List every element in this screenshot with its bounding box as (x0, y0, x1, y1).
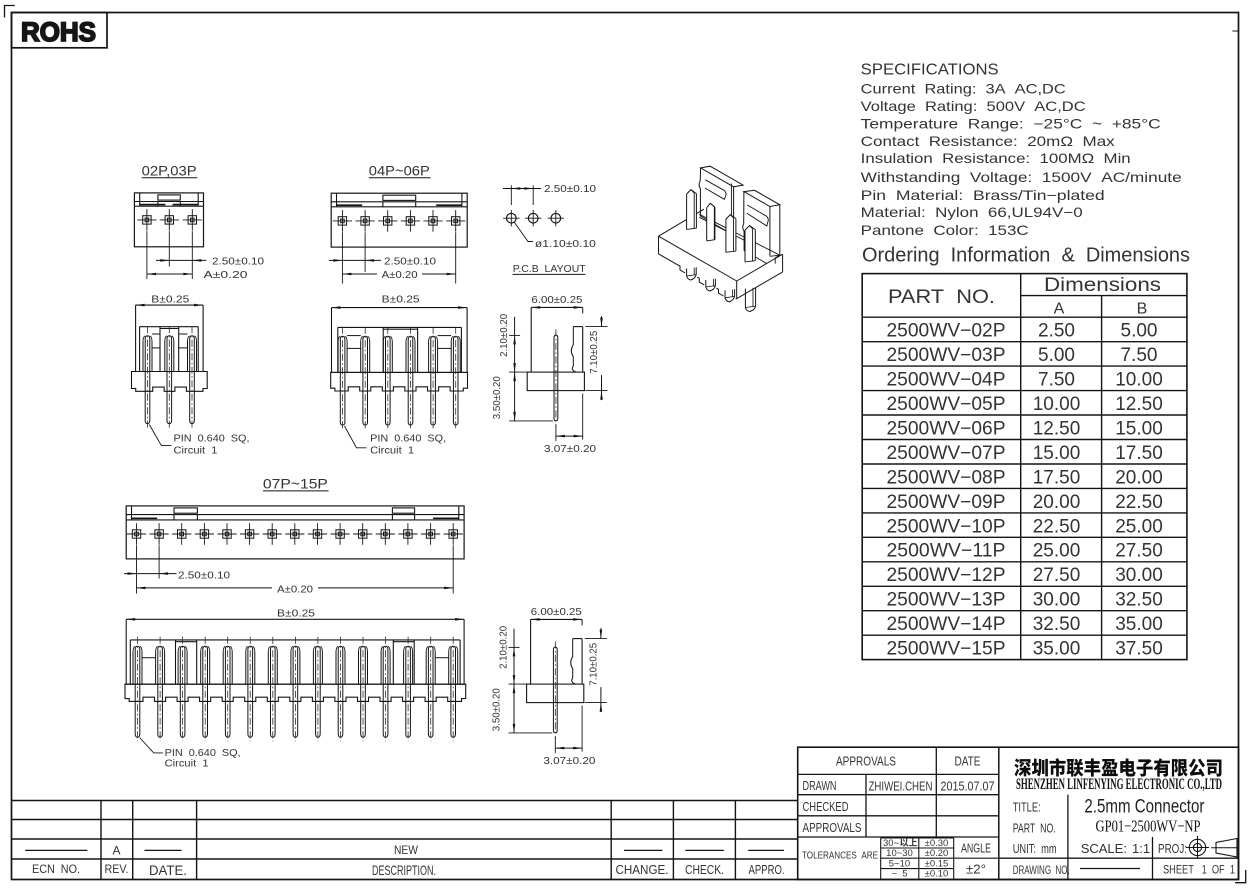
svg-text:B: B (1137, 301, 1148, 318)
svg-text:DATE: DATE (955, 754, 981, 769)
svg-text:2015.07.07: 2015.07.07 (941, 780, 995, 794)
svg-text:A±0.20: A±0.20 (277, 584, 313, 595)
svg-text:35.00: 35.00 (1115, 614, 1163, 635)
svg-text:A±0.20: A±0.20 (204, 270, 248, 281)
svg-text:ø1.10±0.10: ø1.10±0.10 (535, 239, 596, 250)
svg-text:CHANGE.: CHANGE. (616, 862, 669, 877)
svg-text:SHENZHEN LINFENYING ELECTRONIC: SHENZHEN LINFENYING ELECTRONIC CO.,LTD (1016, 776, 1222, 793)
svg-text:Temperature Range: −25°C ~: Temperature Range: −25°C ~ +85°C (861, 115, 1161, 131)
svg-text:DATE.: DATE. (149, 862, 187, 878)
svg-text:APPRO.: APPRO. (749, 862, 785, 877)
svg-text:NEW: NEW (394, 843, 419, 857)
svg-text:2500WV−04P: 2500WV−04P (887, 370, 1006, 391)
svg-text:GP01−2500WV−NP: GP01−2500WV−NP (1096, 817, 1201, 836)
svg-text:2500WV−02P: 2500WV−02P (887, 321, 1006, 342)
svg-text:Circuit 1: Circuit 1 (165, 759, 209, 770)
svg-text:~ 5: ~ 5 (891, 869, 907, 880)
svg-text:Pin Material: Brass/Tin−plat: Pin Material: Brass/Tin−plated (861, 187, 1105, 203)
svg-text:17.50: 17.50 (1033, 467, 1081, 488)
svg-text:Circuit 1: Circuit 1 (174, 445, 218, 456)
svg-text:ROHS: ROHS (21, 17, 96, 47)
svg-text:2.50±0.10: 2.50±0.10 (384, 257, 436, 268)
svg-text:7.50: 7.50 (1121, 345, 1158, 366)
svg-text:22.50: 22.50 (1115, 492, 1163, 513)
svg-text:2500WV−10P: 2500WV−10P (887, 516, 1006, 537)
svg-text:5~10: 5~10 (889, 858, 910, 869)
svg-text:P.C.B LAYOUT: P.C.B LAYOUT (513, 263, 587, 275)
svg-text:PROJ:: PROJ: (1158, 841, 1187, 856)
svg-text:Ordering Information & Dime: Ordering Information & Dimensions (862, 245, 1190, 267)
svg-text:Circuit 1: Circuit 1 (370, 445, 414, 456)
svg-text:2500WV−07P: 2500WV−07P (887, 443, 1006, 464)
svg-text:Withstanding Voltage: 1500V: Withstanding Voltage: 1500V AC/minute (861, 169, 1182, 185)
svg-text:ECN NO.: ECN NO. (32, 862, 80, 876)
svg-text:2.50±0.10: 2.50±0.10 (178, 571, 230, 582)
svg-text:A: A (1054, 301, 1065, 318)
svg-text:2500WV−14P: 2500WV−14P (887, 614, 1006, 635)
svg-text:6.00±0.25: 6.00±0.25 (531, 607, 582, 618)
svg-text:20.00: 20.00 (1033, 492, 1081, 513)
svg-text:32.50: 32.50 (1115, 590, 1163, 611)
svg-text:2.50±0.10: 2.50±0.10 (544, 184, 596, 195)
svg-text:DESCRIPTION.: DESCRIPTION. (372, 862, 436, 878)
svg-text:ZHIWEI.CHEN: ZHIWEI.CHEN (869, 780, 933, 794)
svg-text:Voltage Rating: 500V AC,DC: Voltage Rating: 500V AC,DC (861, 98, 1086, 114)
svg-text:2.10±0.20: 2.10±0.20 (499, 314, 510, 357)
svg-text:3.50±0.20: 3.50±0.20 (491, 688, 502, 731)
svg-text:37.50: 37.50 (1115, 639, 1163, 660)
svg-text:Contact Resistance: 20mΩ Ma: Contact Resistance: 20mΩ Max (861, 133, 1115, 149)
svg-text:5.00: 5.00 (1038, 345, 1075, 366)
svg-text:B±0.25: B±0.25 (277, 608, 315, 619)
svg-text:2.50±0.10: 2.50±0.10 (212, 257, 264, 268)
svg-text:02P,03P: 02P,03P (142, 162, 197, 178)
svg-text:2500WV−12P: 2500WV−12P (887, 565, 1006, 586)
svg-text:5.00: 5.00 (1121, 321, 1158, 342)
svg-text:25.00: 25.00 (1033, 541, 1081, 562)
svg-text:3.07±0.20: 3.07±0.20 (544, 444, 596, 455)
svg-text:ANGLE: ANGLE (961, 842, 991, 856)
svg-text:04P~06P: 04P~06P (369, 162, 430, 178)
svg-text:10.00: 10.00 (1115, 370, 1163, 391)
svg-text:PART NO.: PART NO. (888, 287, 995, 308)
svg-text:Current Rating: 3A AC,DC: Current Rating: 3A AC,DC (861, 81, 1066, 97)
svg-text:±2°: ±2° (966, 863, 986, 877)
svg-text:32.50: 32.50 (1033, 614, 1081, 635)
svg-text:17.50: 17.50 (1115, 443, 1163, 464)
svg-text:3.07±0.20: 3.07±0.20 (543, 756, 595, 767)
svg-text:2500WV−08P: 2500WV−08P (887, 467, 1006, 488)
svg-text:APPROVALS: APPROVALS (836, 754, 896, 769)
svg-text:TOLERANCES ARE: TOLERANCES ARE (802, 850, 878, 862)
svg-text:07P~15P: 07P~15P (263, 476, 328, 492)
svg-text:30.00: 30.00 (1115, 565, 1163, 586)
svg-text:PIN 0.640 SQ,: PIN 0.640 SQ, (174, 433, 250, 444)
svg-text:A: A (112, 844, 120, 858)
svg-text:10.00: 10.00 (1033, 394, 1081, 415)
svg-text:±0.15: ±0.15 (925, 858, 949, 869)
svg-text:2500WV−05P: 2500WV−05P (887, 394, 1006, 415)
svg-text:B±0.25: B±0.25 (382, 294, 420, 305)
svg-text:PART NO.: PART NO. (1013, 821, 1056, 836)
svg-text:±0.10: ±0.10 (925, 869, 949, 880)
svg-text:Pantone Color: 153C: Pantone Color: 153C (861, 222, 1029, 238)
svg-text:SCALE:: SCALE: (1081, 841, 1127, 856)
svg-text:SPECIFICATIONS: SPECIFICATIONS (861, 62, 999, 79)
svg-text:B±0.25: B±0.25 (151, 294, 189, 305)
svg-text:UNIT: mm: UNIT: mm (1013, 841, 1057, 856)
svg-text:PIN 0.640 SQ,: PIN 0.640 SQ, (370, 433, 446, 444)
svg-text:25.00: 25.00 (1115, 516, 1163, 537)
svg-text:A±0.20: A±0.20 (382, 270, 418, 281)
svg-text:30.00: 30.00 (1033, 590, 1081, 611)
svg-text:27.50: 27.50 (1115, 541, 1163, 562)
svg-text:2.5mm Connector: 2.5mm Connector (1084, 797, 1205, 818)
svg-text:Insulation Resistance: 100MΩ: Insulation Resistance: 100MΩ Min (861, 150, 1131, 166)
svg-text:2500WV−13P: 2500WV−13P (887, 590, 1006, 611)
svg-text:15.00: 15.00 (1115, 418, 1163, 439)
svg-text:2500WV−06P: 2500WV−06P (887, 418, 1006, 439)
svg-text:12.50: 12.50 (1033, 418, 1081, 439)
svg-text:2500WV−11P: 2500WV−11P (887, 541, 1006, 562)
svg-text:2.50: 2.50 (1038, 321, 1075, 342)
svg-text:DRAWN: DRAWN (803, 779, 837, 793)
svg-text:1:1: 1:1 (1132, 841, 1150, 856)
svg-text:3.50±0.20: 3.50±0.20 (492, 376, 503, 419)
svg-text:Material: Nylon 66,UL94V−0: Material: Nylon 66,UL94V−0 (861, 204, 1083, 220)
svg-text:20.00: 20.00 (1115, 467, 1163, 488)
svg-text:APPROVALS: APPROVALS (803, 821, 862, 835)
svg-text:2500WV−09P: 2500WV−09P (887, 492, 1006, 513)
svg-text:DRAWING NO.: DRAWING NO. (1013, 863, 1070, 877)
svg-text:2500WV−15P: 2500WV−15P (887, 639, 1006, 660)
svg-text:27.50: 27.50 (1033, 565, 1081, 586)
svg-text:35.00: 35.00 (1033, 639, 1081, 660)
svg-text:6.00±0.25: 6.00±0.25 (531, 295, 582, 306)
svg-text:Dimensions: Dimensions (1044, 275, 1161, 296)
svg-text:15.00: 15.00 (1033, 443, 1081, 464)
svg-text:TITLE:: TITLE: (1013, 800, 1041, 815)
svg-text:7.10±0.25: 7.10±0.25 (588, 642, 599, 685)
svg-text:CHECK.: CHECK. (685, 862, 724, 877)
svg-text:12.50: 12.50 (1115, 394, 1163, 415)
svg-text:CHECKED: CHECKED (803, 800, 849, 814)
svg-text:2500WV−03P: 2500WV−03P (887, 345, 1006, 366)
svg-text:SHEET 1 OF 1: SHEET 1 OF 1 (1163, 863, 1235, 877)
svg-text:7.10±0.25: 7.10±0.25 (589, 330, 600, 373)
svg-text:7.50: 7.50 (1038, 370, 1075, 391)
svg-text:REV.: REV. (105, 862, 129, 876)
svg-text:2.10±0.20: 2.10±0.20 (498, 626, 509, 669)
svg-text:22.50: 22.50 (1033, 516, 1081, 537)
